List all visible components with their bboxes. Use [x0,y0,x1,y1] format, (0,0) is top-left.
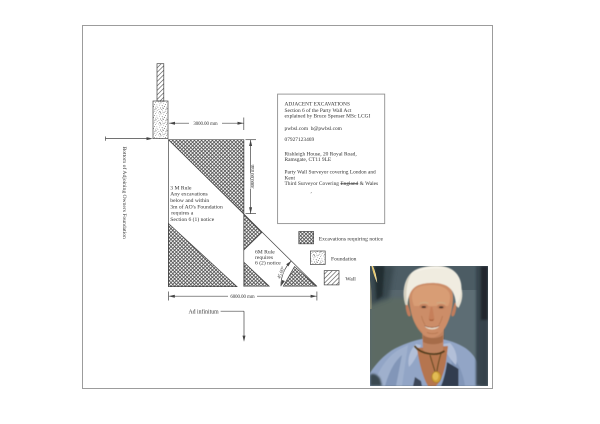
svg-text:,: , [311,190,312,195]
svg-text:ADJACENT EXCAVATIONS: ADJACENT EXCAVATIONS [285,102,350,108]
svg-text:6 (2) notice: 6 (2) notice [255,259,281,266]
svg-text:6000.00 mm: 6000.00 mm [230,295,255,300]
svg-text:Any excavations: Any excavations [170,192,207,198]
svg-text:Party Wall Surveyor covering L: Party Wall Surveyor covering London and [285,170,377,176]
svg-text:Wall: Wall [345,277,356,283]
svg-text:Foundation: Foundation [331,257,357,263]
svg-text:Section 6 (1) notice: Section 6 (1) notice [170,216,214,223]
svg-text:below and within: below and within [170,198,209,204]
svg-text:3m of AO's Foundation: 3m of AO's Foundation [170,203,223,210]
svg-text:45.00°: 45.00° [277,266,287,280]
svg-text:requires a: requires a [171,211,193,217]
svg-text:3000.00 mm: 3000.00 mm [193,122,218,127]
svg-text:07927123469: 07927123469 [285,137,315,143]
svg-text:3 M Rule: 3 M Rule [170,185,192,191]
svg-text:Ad infinitum: Ad infinitum [189,308,220,315]
svg-text:explained by Bruce Spenser MSc: explained by Bruce Spenser MSc LCGI [285,113,371,119]
svg-text:Bottom of Adjoining Owners Fou: Bottom of Adjoining Owners Foundation [121,147,128,239]
svg-text:pwbsl.com b@pwbsl.com: pwbsl.com b@pwbsl.com [285,126,343,132]
svg-text:Third Surveyor Covering Englan: Third Surveyor Covering England & Wales [285,181,379,187]
svg-text:Excavations requiring notice: Excavations requiring notice [319,236,384,242]
svg-text:3000.00 mm: 3000.00 mm [251,164,256,189]
svg-text:Ramsgate, CT11 9LE: Ramsgate, CT11 9LE [285,157,332,163]
